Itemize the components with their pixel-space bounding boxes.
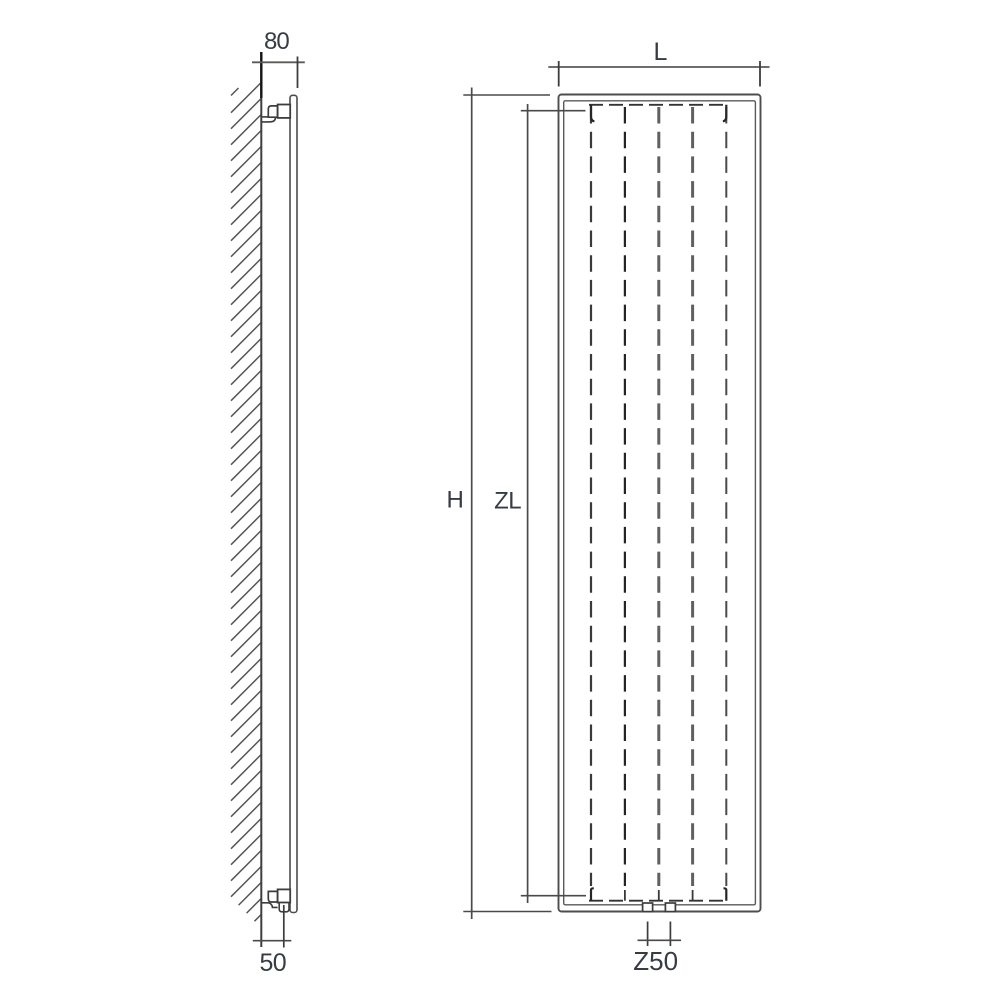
svg-text:80: 80 <box>264 28 289 55</box>
svg-text:ZL: ZL <box>494 488 521 515</box>
svg-text:L: L <box>654 38 668 66</box>
svg-text:Z50: Z50 <box>633 946 678 976</box>
svg-text:50: 50 <box>259 949 285 977</box>
svg-text:H: H <box>446 487 463 514</box>
